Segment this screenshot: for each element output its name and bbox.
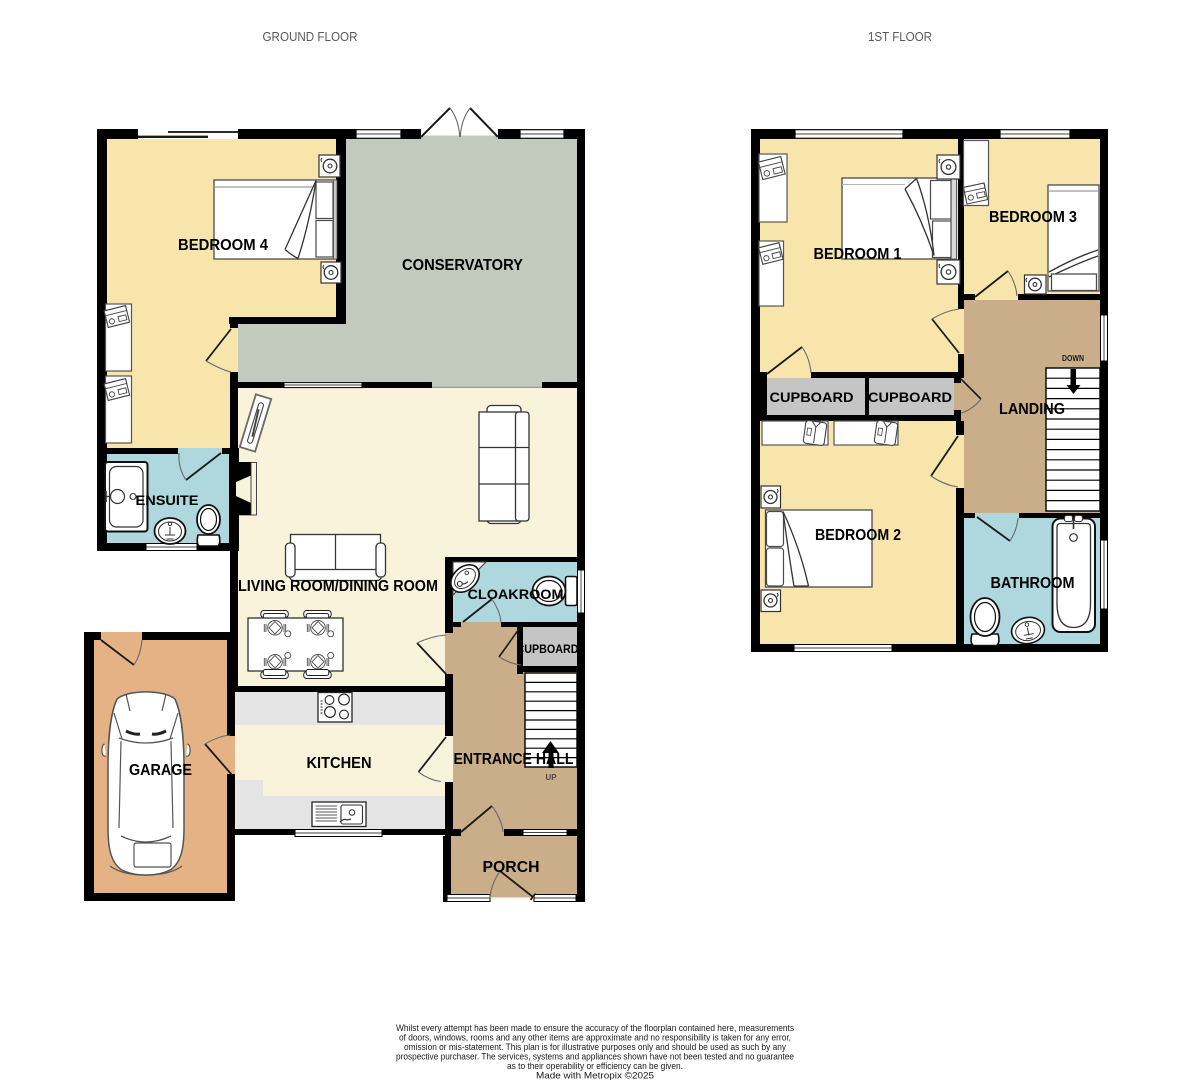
svg-text:1ST FLOOR: 1ST FLOOR bbox=[868, 29, 932, 44]
svg-text:GARAGE: GARAGE bbox=[129, 762, 192, 779]
svg-text:BEDROOM 3: BEDROOM 3 bbox=[989, 209, 1077, 226]
svg-text:omission or mis-statement. Thi: omission or mis-statement. This plan is … bbox=[404, 1042, 786, 1052]
svg-text:CONSERVATORY: CONSERVATORY bbox=[402, 257, 523, 274]
svg-text:BEDROOM 1: BEDROOM 1 bbox=[814, 246, 902, 263]
svg-text:of doors, windows, rooms and a: of doors, windows, rooms and any other i… bbox=[399, 1033, 791, 1043]
svg-text:UP: UP bbox=[546, 773, 558, 782]
svg-text:CUPBOARD: CUPBOARD bbox=[770, 390, 854, 405]
svg-text:CLOAKROOM: CLOAKROOM bbox=[468, 587, 564, 602]
svg-text:CUPBOARD: CUPBOARD bbox=[517, 642, 579, 656]
svg-text:LIVING ROOM/DINING ROOM: LIVING ROOM/DINING ROOM bbox=[238, 578, 438, 595]
svg-text:KITCHEN: KITCHEN bbox=[307, 755, 372, 772]
svg-text:as to their operability or eff: as to their operability or efficiency ca… bbox=[507, 1061, 683, 1071]
svg-text:PORCH: PORCH bbox=[483, 859, 540, 876]
svg-text:ENTRANCE HALL: ENTRANCE HALL bbox=[454, 751, 574, 768]
svg-text:Whilst every attempt has been: Whilst every attempt has been made to en… bbox=[396, 1023, 794, 1033]
svg-text:GROUND FLOOR: GROUND FLOOR bbox=[263, 29, 358, 44]
svg-text:Made with Metropix ©2025: Made with Metropix ©2025 bbox=[536, 1071, 654, 1080]
svg-text:CUPBOARD: CUPBOARD bbox=[868, 390, 952, 405]
svg-text:BEDROOM 2: BEDROOM 2 bbox=[815, 527, 901, 544]
svg-text:BATHROOM: BATHROOM bbox=[991, 575, 1075, 592]
svg-text:ENSUITE: ENSUITE bbox=[136, 492, 199, 508]
svg-text:prospective purchaser. The ser: prospective purchaser. The services, sys… bbox=[396, 1052, 794, 1062]
svg-text:LANDING: LANDING bbox=[999, 401, 1065, 418]
svg-text:DOWN: DOWN bbox=[1062, 353, 1084, 363]
svg-text:BEDROOM 4: BEDROOM 4 bbox=[178, 237, 268, 254]
